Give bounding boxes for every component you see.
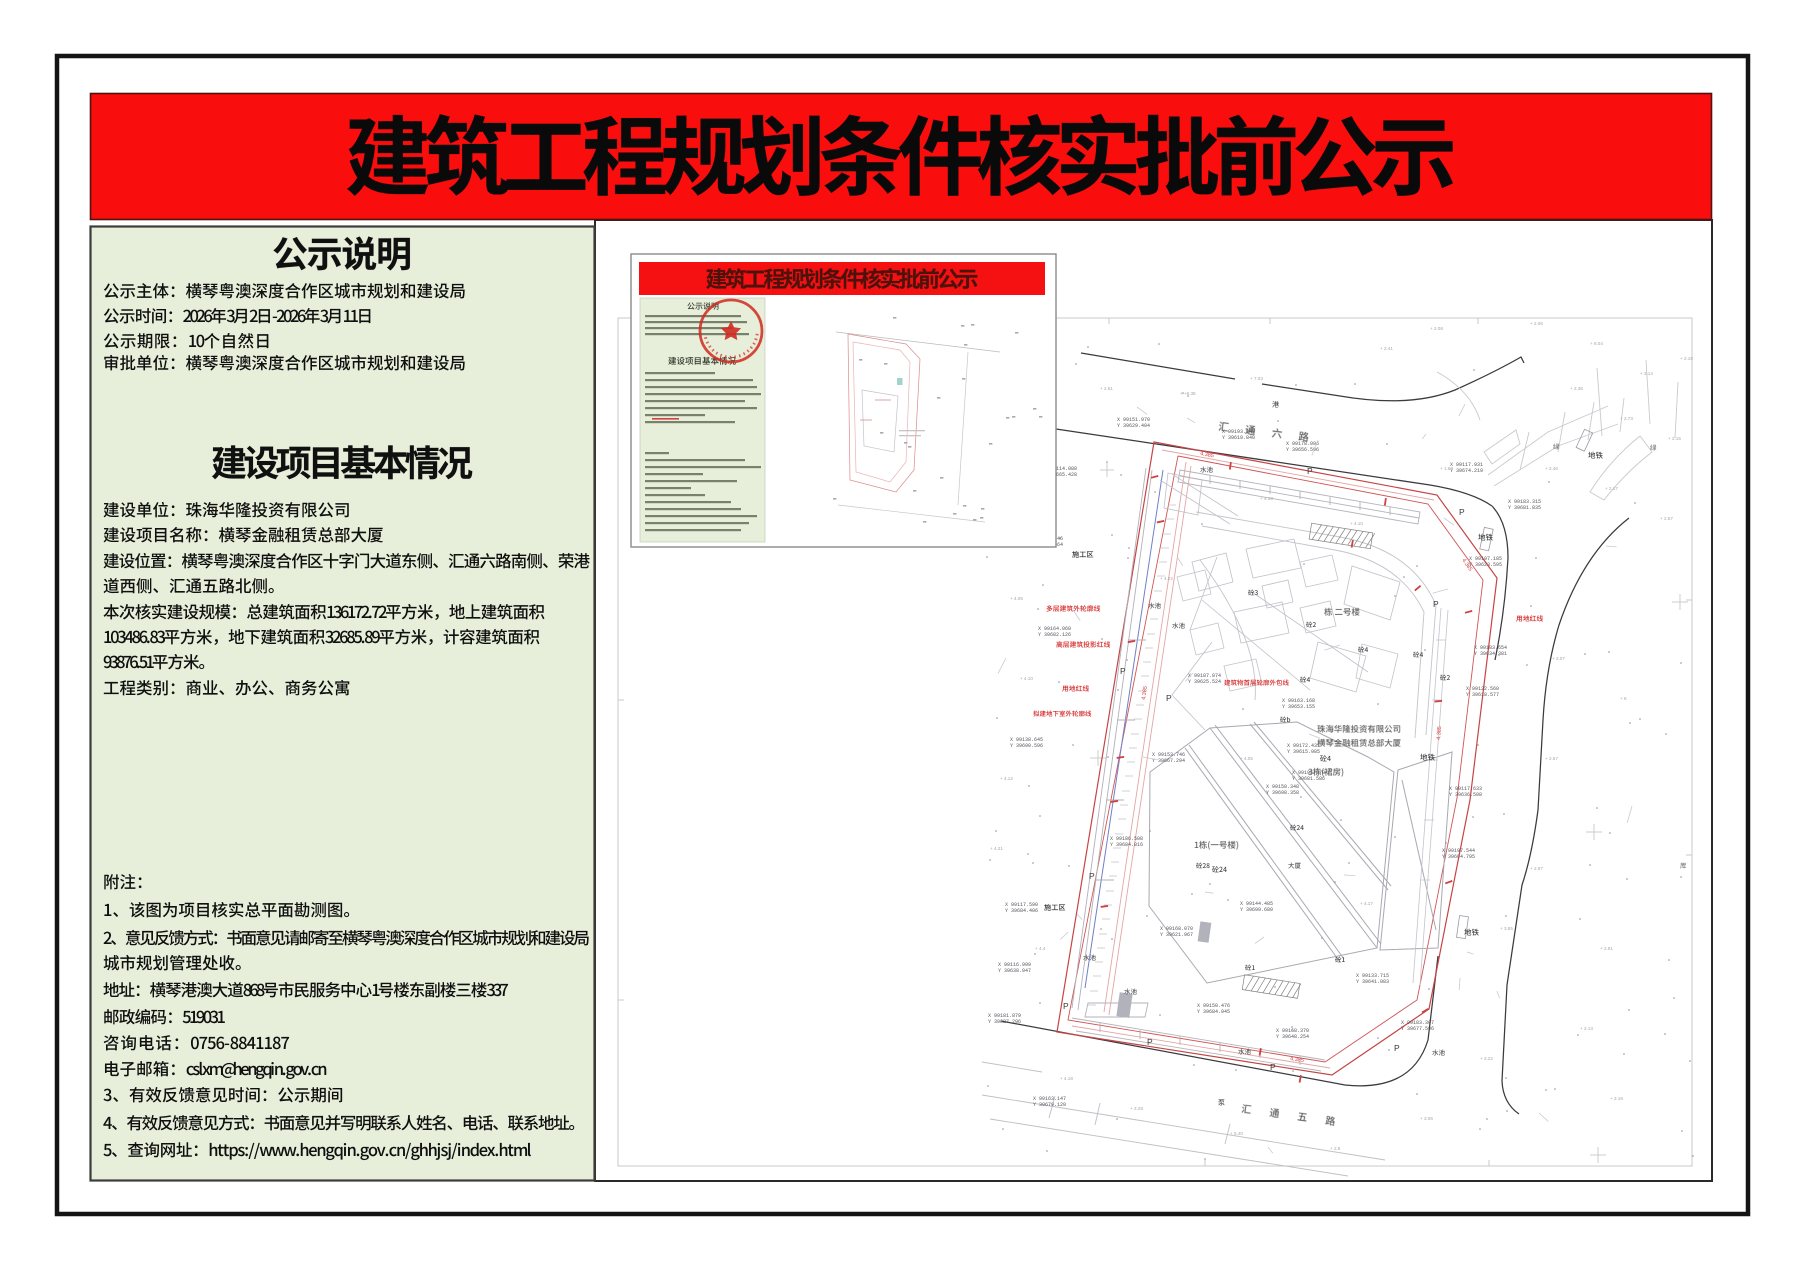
svg-text:+ 2.36: + 2.36 <box>1570 386 1583 391</box>
svg-text:+ 8: + 8 <box>1620 696 1627 701</box>
svg-text:Y 39684.406: Y 39684.406 <box>1005 908 1038 914</box>
svg-text:Y 39648.254: Y 39648.254 <box>1276 1034 1309 1040</box>
svg-text:Y 39625.524: Y 39625.524 <box>1188 679 1221 685</box>
svg-text:P: P <box>1166 693 1172 703</box>
svg-text:+ 4.12: + 4.12 <box>1000 776 1013 781</box>
svg-text:+ 2.16: + 2.16 <box>1610 1096 1623 1101</box>
svg-text:+ 2.08: + 2.08 <box>1430 326 1443 331</box>
svg-text:+ 2.87: + 2.87 <box>1530 866 1543 871</box>
svg-text:Y 39615.985: Y 39615.985 <box>1287 749 1320 755</box>
svg-text:+ 4.18: + 4.18 <box>1260 496 1273 501</box>
svg-text:+ 2.15: + 2.15 <box>1668 436 1681 441</box>
svg-text:+ 3.28: + 3.28 <box>1130 1106 1143 1111</box>
svg-text:+ 2.13: + 2.13 <box>1580 1026 1593 1031</box>
svg-text:+ 2.18: + 2.18 <box>1680 356 1693 361</box>
svg-text:P: P <box>1307 466 1313 476</box>
svg-text:P: P <box>1459 507 1465 517</box>
svg-text:+ 2.73: + 2.73 <box>1620 416 1633 421</box>
svg-text:+ 3.06: + 3.06 <box>1420 1116 1433 1121</box>
svg-text:+ 4.18: + 4.18 <box>1060 1076 1073 1081</box>
svg-text:+ 4.10: + 4.10 <box>1350 521 1363 526</box>
svg-text:Y 39690.596: Y 39690.596 <box>1010 743 1043 749</box>
svg-text:+ 4.21: + 4.21 <box>990 846 1003 851</box>
svg-text:+ 3.07: + 3.07 <box>1552 656 1565 661</box>
svg-text:+ 4.05: + 4.05 <box>1010 596 1023 601</box>
svg-text:Y 39636.508: Y 39636.508 <box>1449 792 1482 798</box>
svg-text:Y 39621.967: Y 39621.967 <box>1160 932 1193 938</box>
svg-text:+ 3.85: + 3.85 <box>1500 926 1513 931</box>
svg-text:+ 2.57: + 2.57 <box>1545 756 1558 761</box>
svg-text:Y 39681.835: Y 39681.835 <box>1508 505 1541 511</box>
svg-text:P: P <box>1089 871 1095 881</box>
svg-text:Y 39638.047: Y 39638.047 <box>998 968 1031 974</box>
svg-text:Y 39619.840: Y 39619.840 <box>1222 435 1255 441</box>
svg-text:+ 2.06: + 2.06 <box>1530 321 1543 326</box>
svg-text:+ 2.57: + 2.57 <box>1660 516 1673 521</box>
svg-text:+ 7.03: + 7.03 <box>1250 376 1263 381</box>
svg-text:Y 39699.680: Y 39699.680 <box>1240 907 1273 913</box>
svg-text:+ 2.41: + 2.41 <box>1380 346 1393 351</box>
svg-text:P: P <box>1063 1001 1069 1011</box>
svg-text:+ 8.04: + 8.04 <box>1590 341 1603 346</box>
svg-text:+ 2.8: + 2.8 <box>1330 1146 1341 1151</box>
svg-text:Y 39623.595: Y 39623.595 <box>1469 562 1502 568</box>
svg-text:+ 2.91: + 2.91 <box>1600 946 1613 951</box>
svg-text:Y 39618.577: Y 39618.577 <box>1466 692 1499 698</box>
svg-text:+ 3.22: + 3.22 <box>1480 1056 1493 1061</box>
svg-text:Y 39684.816: Y 39684.816 <box>1110 842 1143 848</box>
svg-text:P: P <box>1433 599 1439 609</box>
svg-text:4.385: 4.385 <box>1436 726 1443 740</box>
svg-text:+ 2.46: + 2.46 <box>1545 466 1558 471</box>
svg-text:Y 39674.219: Y 39674.219 <box>1450 468 1483 474</box>
svg-text:P: P <box>1270 1062 1276 1072</box>
svg-text:+ 4.17: + 4.17 <box>1360 901 1373 906</box>
svg-text:P: P <box>1147 1037 1153 1047</box>
svg-text:Y 39653.155: Y 39653.155 <box>1282 704 1315 710</box>
svg-text:P: P <box>1394 1043 1400 1053</box>
svg-text:+ 1.68: + 1.68 <box>1440 466 1453 471</box>
svg-text:+ 5.40: + 5.40 <box>1230 1131 1243 1136</box>
svg-text:+ 3.14: + 3.14 <box>1640 371 1653 376</box>
svg-text:Y 39627.296: Y 39627.296 <box>988 1019 1021 1025</box>
svg-text:+ 2.51: + 2.51 <box>1100 386 1113 391</box>
svg-text:Y 39677.506: Y 39677.506 <box>1401 1026 1434 1032</box>
svg-text:+ 4.22: + 4.22 <box>1160 576 1173 581</box>
svg-text:Y 39664.795: Y 39664.795 <box>1442 854 1475 860</box>
svg-text:Y 39681.586: Y 39681.586 <box>1292 776 1325 782</box>
svg-text:Y 39679.120: Y 39679.120 <box>1033 1102 1066 1108</box>
svg-text:+ 4.05: + 4.05 <box>1240 756 1253 761</box>
svg-text:+ 2.17: + 2.17 <box>1605 486 1618 491</box>
svg-text:Y 39629.404: Y 39629.404 <box>1117 423 1150 429</box>
svg-text:Y 39682.126: Y 39682.126 <box>1038 632 1071 638</box>
svg-text:Y 39634.381: Y 39634.381 <box>1474 651 1507 657</box>
svg-text:Y 39667.294: Y 39667.294 <box>1152 758 1185 764</box>
svg-text:Y 39698.358: Y 39698.358 <box>1266 790 1299 796</box>
svg-text:+ 4.10: + 4.10 <box>1020 676 1033 681</box>
svg-text:Y 39684.945: Y 39684.945 <box>1197 1009 1230 1015</box>
svg-text:+ 4.4: + 4.4 <box>1035 946 1046 951</box>
svg-text:Y 39641.083: Y 39641.083 <box>1356 979 1389 985</box>
svg-text:P: P <box>1120 666 1126 676</box>
